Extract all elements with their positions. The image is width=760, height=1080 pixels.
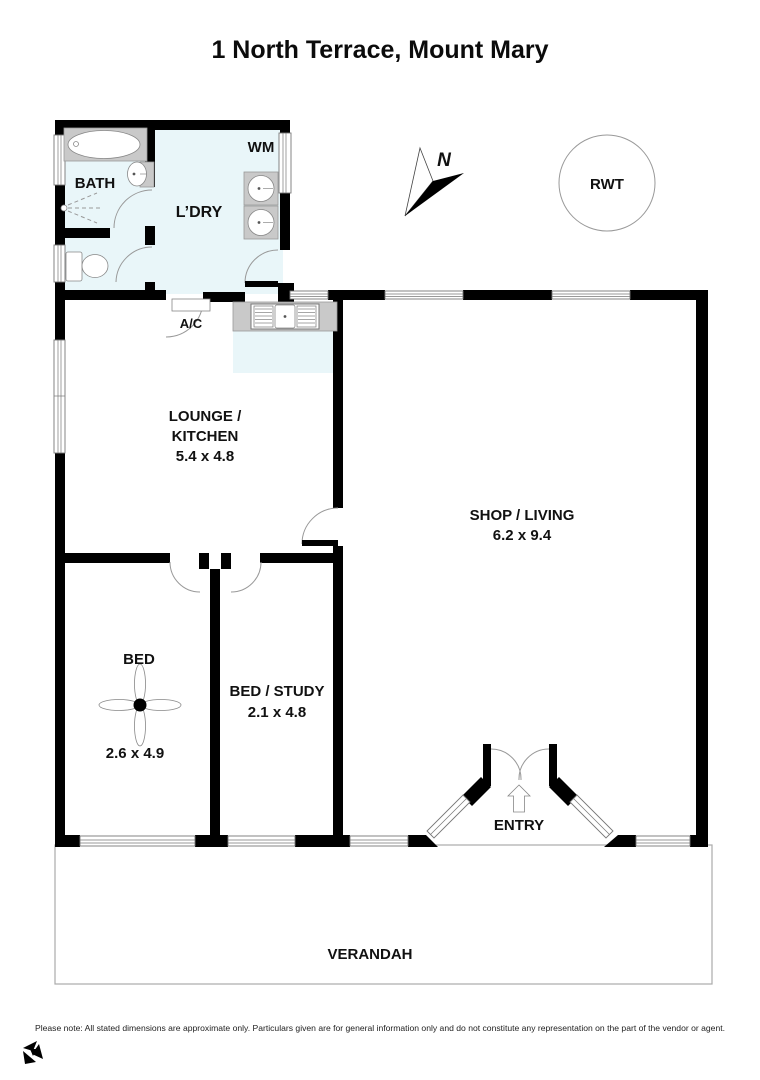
entry-door-right-arc [519, 749, 549, 780]
floorplan-canvas: 1 North Terrace, Mount Mary [0, 0, 760, 1080]
laundry-label: L’DRY [176, 204, 223, 221]
kitchen-floor [233, 331, 337, 373]
window [54, 135, 65, 185]
window [552, 291, 630, 299]
bath-label: BATH [75, 175, 116, 192]
lounge-kitchen-dimensions: 5.4 x 4.8 [176, 448, 234, 465]
page-title: 1 North Terrace, Mount Mary [211, 36, 548, 64]
window [80, 836, 195, 846]
bathtub-icon [64, 128, 147, 161]
disclaimer-text: Please note: All stated dimensions are a… [35, 1023, 725, 1033]
bed-study-label: BED / STUDY [229, 683, 324, 700]
window [350, 836, 408, 846]
ac-label: A/C [180, 316, 203, 331]
bay-window-right [570, 795, 613, 838]
bed-label: BED [123, 651, 155, 668]
rainwater-tank: RWT [559, 135, 655, 231]
ac-unit-icon [172, 299, 210, 311]
shop-living-label: SHOP / LIVING [470, 507, 575, 524]
lounge-kitchen-label-line1: LOUNGE / [169, 408, 242, 425]
shop-living-dimensions: 6.2 x 9.4 [493, 527, 552, 544]
bed-dimensions: 2.6 x 4.9 [106, 745, 164, 762]
compass: N [405, 148, 464, 216]
tank-label: RWT [590, 176, 624, 193]
entry-arrow-icon [508, 785, 530, 812]
bed-study-dimensions: 2.1 x 4.8 [248, 704, 306, 721]
window [636, 836, 690, 846]
floor-tints [62, 127, 337, 373]
shop-door-leaf [302, 540, 338, 546]
verandah-label: VERANDAH [327, 946, 412, 963]
kitchen-bench [233, 302, 337, 331]
shop-door-arc [302, 508, 338, 544]
washing-machine-icon [244, 172, 278, 205]
window [290, 291, 328, 299]
window [54, 245, 65, 282]
washing-machine-icon [244, 206, 278, 239]
bed-study-door-arc [231, 562, 261, 592]
entry-label: ENTRY [494, 817, 544, 834]
entry-door-left-arc [491, 749, 521, 780]
window [228, 836, 295, 846]
verandah-outline [55, 845, 712, 984]
floorplan-page: 1 North Terrace, Mount Mary [0, 0, 760, 1080]
window [279, 133, 291, 193]
compass-needle-white [405, 148, 433, 216]
bed-door-arc [170, 562, 200, 592]
window [385, 291, 463, 299]
window [54, 340, 65, 453]
compass-north-label: N [437, 150, 452, 171]
footer: Please note: All stated dimensions are a… [23, 1023, 725, 1064]
wm-label: WM [248, 139, 275, 156]
laundry-door-leaf [245, 281, 278, 287]
bay-window-left [427, 795, 470, 838]
basin-icon [128, 162, 155, 187]
lounge-kitchen-label-line2: KITCHEN [172, 428, 239, 445]
agency-logo-icon [23, 1041, 43, 1064]
ceiling-fan-icon [99, 664, 181, 746]
